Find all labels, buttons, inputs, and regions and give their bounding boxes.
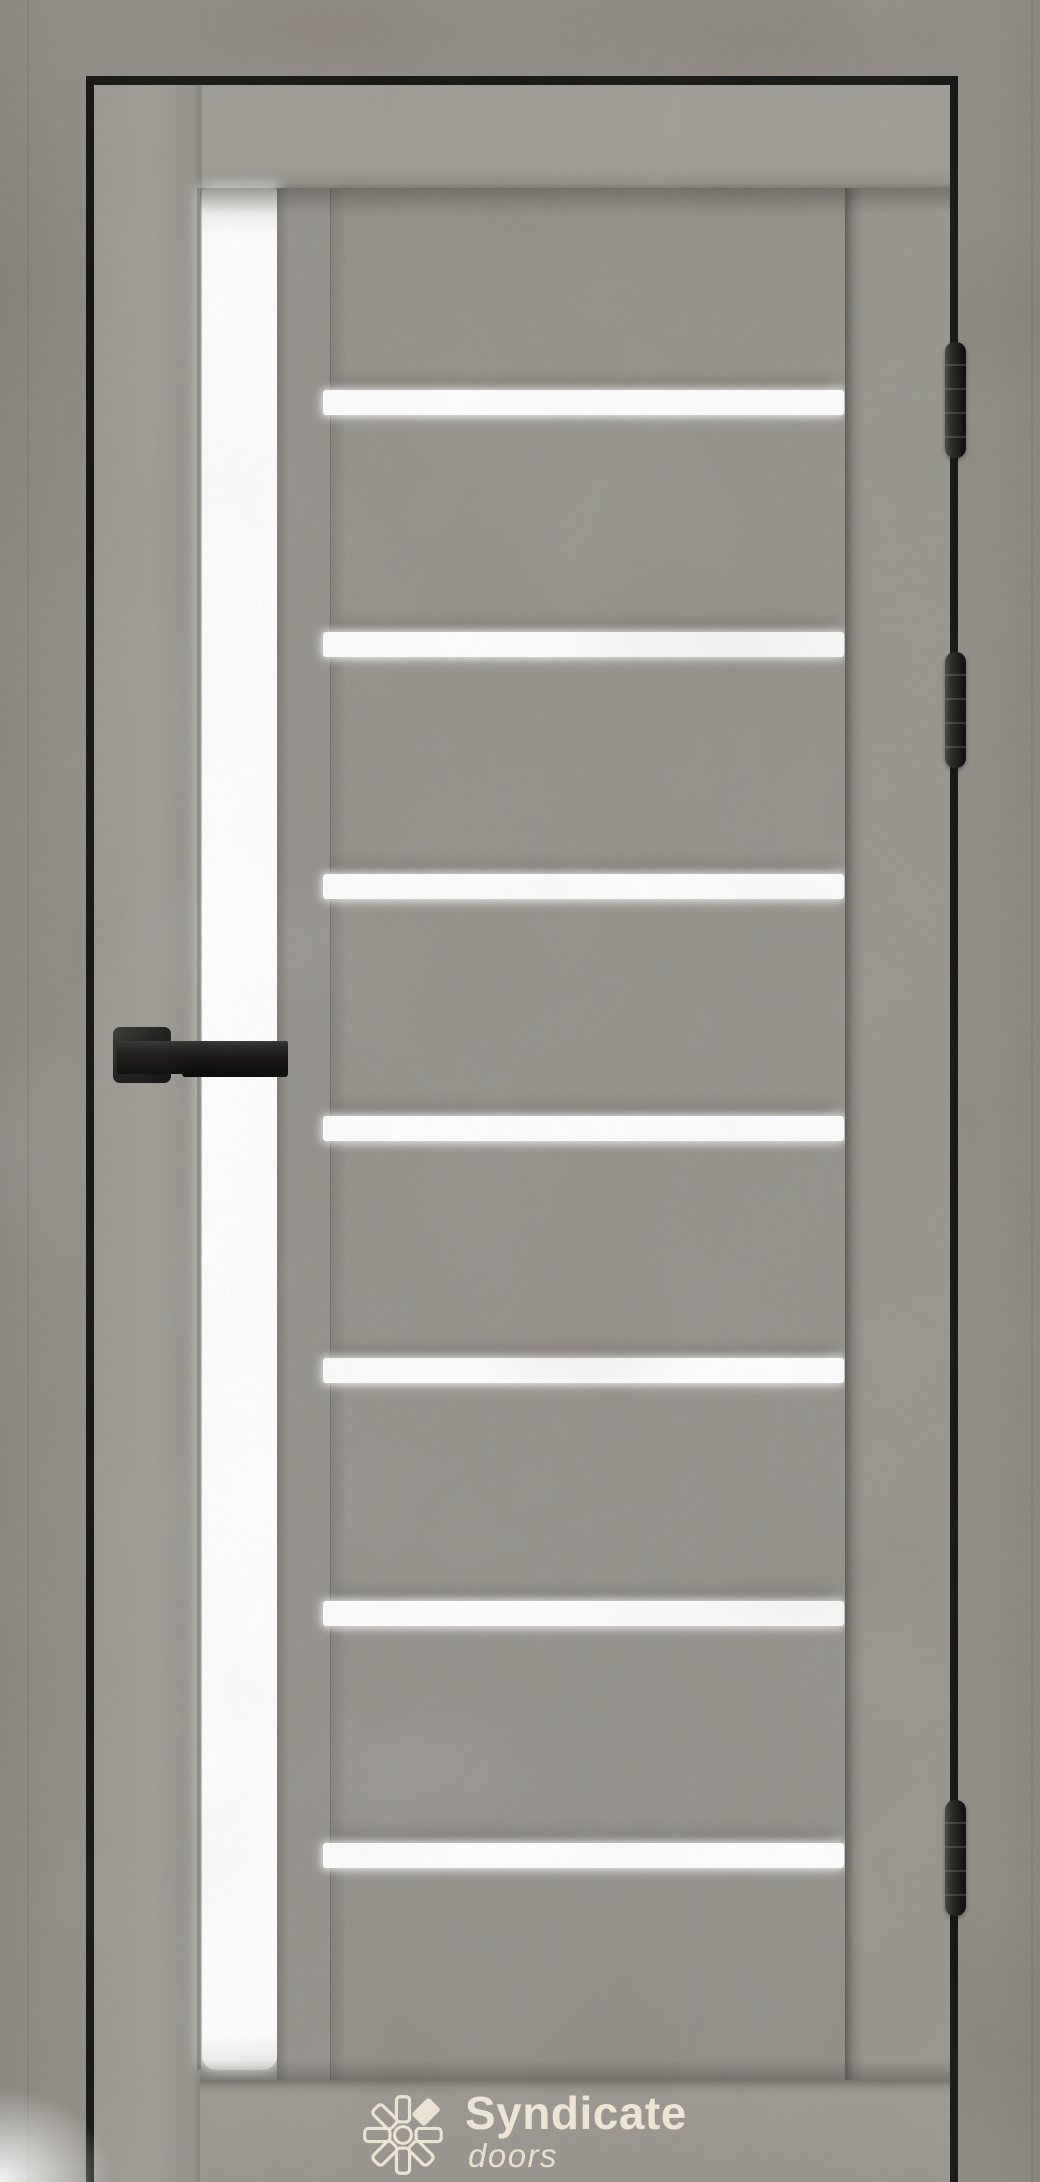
glass-strip-horizontal bbox=[323, 1358, 844, 1383]
door-rail-bottom: Syndicate doors bbox=[200, 2080, 950, 2182]
hinge bbox=[945, 652, 966, 768]
brand-logo: Syndicate doors bbox=[200, 2080, 950, 2182]
door-stile-right bbox=[845, 188, 950, 2182]
wall-seam bbox=[1031, 0, 1033, 2182]
glass-strip-horizontal bbox=[323, 1843, 844, 1868]
door-stile-left bbox=[94, 85, 200, 2182]
door-rail-top bbox=[200, 85, 950, 188]
door-frame-gap-top bbox=[86, 76, 958, 85]
glass-strip-horizontal bbox=[323, 632, 844, 657]
glass-strip-horizontal bbox=[323, 1601, 844, 1626]
sunburst-asterisk-icon bbox=[361, 2093, 445, 2177]
glass-strip-horizontal bbox=[323, 874, 844, 899]
brand-tagline: doors bbox=[468, 2139, 558, 2172]
glass-strip-horizontal bbox=[323, 390, 844, 415]
glass-strip-vertical bbox=[202, 188, 277, 2070]
door-handle-grip bbox=[182, 1045, 288, 1077]
hinge bbox=[945, 1800, 966, 1916]
door-frame-gap-left bbox=[86, 76, 94, 2182]
glazed-panel bbox=[330, 188, 846, 2080]
hinge bbox=[945, 342, 966, 458]
glass-seam bbox=[197, 188, 201, 2070]
door-leaf: Syndicate doors bbox=[94, 85, 950, 2182]
wall-seam bbox=[27, 0, 29, 2182]
brand-name: Syndicate bbox=[465, 2090, 687, 2136]
door-photo: Syndicate doors bbox=[0, 0, 1040, 2182]
glass-strip-horizontal bbox=[323, 1116, 844, 1141]
